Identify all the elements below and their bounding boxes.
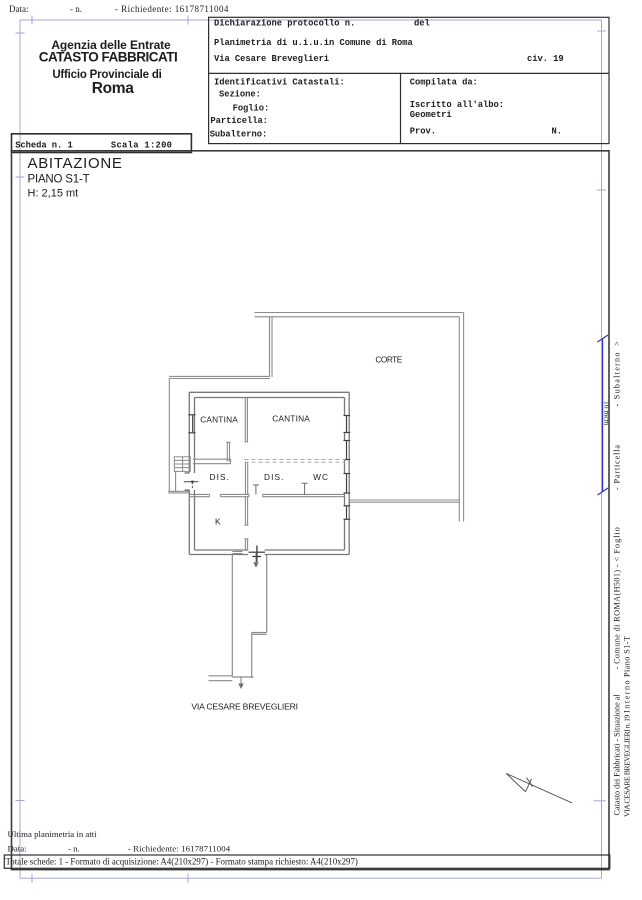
- svg-text:- Richiedente: 16178711004: - Richiedente: 16178711004: [128, 844, 231, 854]
- svg-text:civ. 19: civ. 19: [527, 54, 564, 64]
- svg-text:Data:: Data:: [8, 844, 27, 854]
- svg-text:K: K: [215, 516, 221, 526]
- svg-text:>: >: [613, 341, 622, 346]
- svg-text:Catasto dei Fabbricati - Situa: Catasto dei Fabbricati - Situazione al: [613, 694, 622, 816]
- svg-text:- Particella: - Particella: [613, 444, 622, 490]
- svg-text:DIS.: DIS.: [210, 472, 231, 482]
- svg-text:- n.: - n.: [70, 4, 82, 14]
- svg-text:Foglio:: Foglio:: [233, 104, 270, 114]
- svg-text:Geometri: Geometri: [410, 110, 452, 120]
- svg-text:Compilata da:: Compilata da:: [410, 78, 478, 88]
- svg-text:Totale schede: 1 - Formato di: Totale schede: 1 - Formato di acquisizio…: [6, 856, 358, 866]
- svg-text:Sezione:: Sezione:: [219, 90, 261, 100]
- svg-text:Particella:: Particella:: [210, 116, 268, 126]
- svg-text:Via Cesare Breveglieri: Via Cesare Breveglieri: [214, 54, 329, 64]
- svg-text:VIA CESARE BREVEGLIERI: VIA CESARE BREVEGLIERI: [191, 701, 297, 711]
- svg-text:Interno: Interno: [623, 679, 632, 713]
- svg-text:N.: N.: [552, 127, 562, 137]
- svg-text:Planimetria di u.i.u.in Comune: Planimetria di u.i.u.in Comune di Roma: [214, 38, 413, 48]
- svg-text:VIA CESARE BREVEGLIERI n. 19: VIA CESARE BREVEGLIERI n. 19: [623, 715, 632, 817]
- svg-text:10 mcm: 10 mcm: [603, 401, 612, 426]
- svg-text:Prov.: Prov.: [410, 127, 436, 137]
- svg-text:- Richiedente: 16178711004: - Richiedente: 16178711004: [115, 4, 229, 14]
- svg-text:Scala 1:200: Scala 1:200: [111, 141, 172, 151]
- svg-text:CANTINA: CANTINA: [200, 414, 238, 424]
- svg-text:CATASTO FABBRICATI: CATASTO FABBRICATI: [39, 50, 178, 65]
- svg-text:CORTE: CORTE: [375, 355, 402, 365]
- svg-text:- n.: - n.: [68, 844, 80, 854]
- svg-text:Subalterno:: Subalterno:: [210, 130, 268, 140]
- svg-text:Iscritto all'albo:: Iscritto all'albo:: [410, 100, 504, 110]
- svg-text:- Subalterno: - Subalterno: [613, 351, 622, 406]
- svg-text:Identificativi Catastali:: Identificativi Catastali:: [214, 78, 345, 88]
- svg-text:ABITAZIONE: ABITAZIONE: [28, 155, 123, 172]
- svg-text:Ultima planimetria in atti: Ultima planimetria in atti: [8, 829, 98, 839]
- svg-text:- Comune di ROMA(H501) - <: - Comune di ROMA(H501) - <: [613, 556, 622, 669]
- svg-text:Piano S1-T: Piano S1-T: [623, 636, 632, 677]
- svg-text:Dichiarazione protocollo n.: Dichiarazione protocollo n.: [214, 19, 355, 29]
- svg-text:Scheda n. 1: Scheda n. 1: [15, 141, 73, 151]
- svg-text:Roma: Roma: [92, 80, 135, 97]
- svg-text:Foglio: Foglio: [613, 526, 622, 553]
- svg-text:CANTINA: CANTINA: [272, 413, 310, 423]
- svg-text:Data:: Data:: [9, 4, 29, 14]
- svg-text:H: 2,15 mt: H: 2,15 mt: [28, 188, 79, 200]
- svg-text:DIS.: DIS.: [264, 472, 285, 482]
- svg-text:WC: WC: [313, 472, 329, 482]
- svg-text:PIANO S1-T: PIANO S1-T: [28, 174, 90, 186]
- svg-text:del: del: [414, 19, 430, 29]
